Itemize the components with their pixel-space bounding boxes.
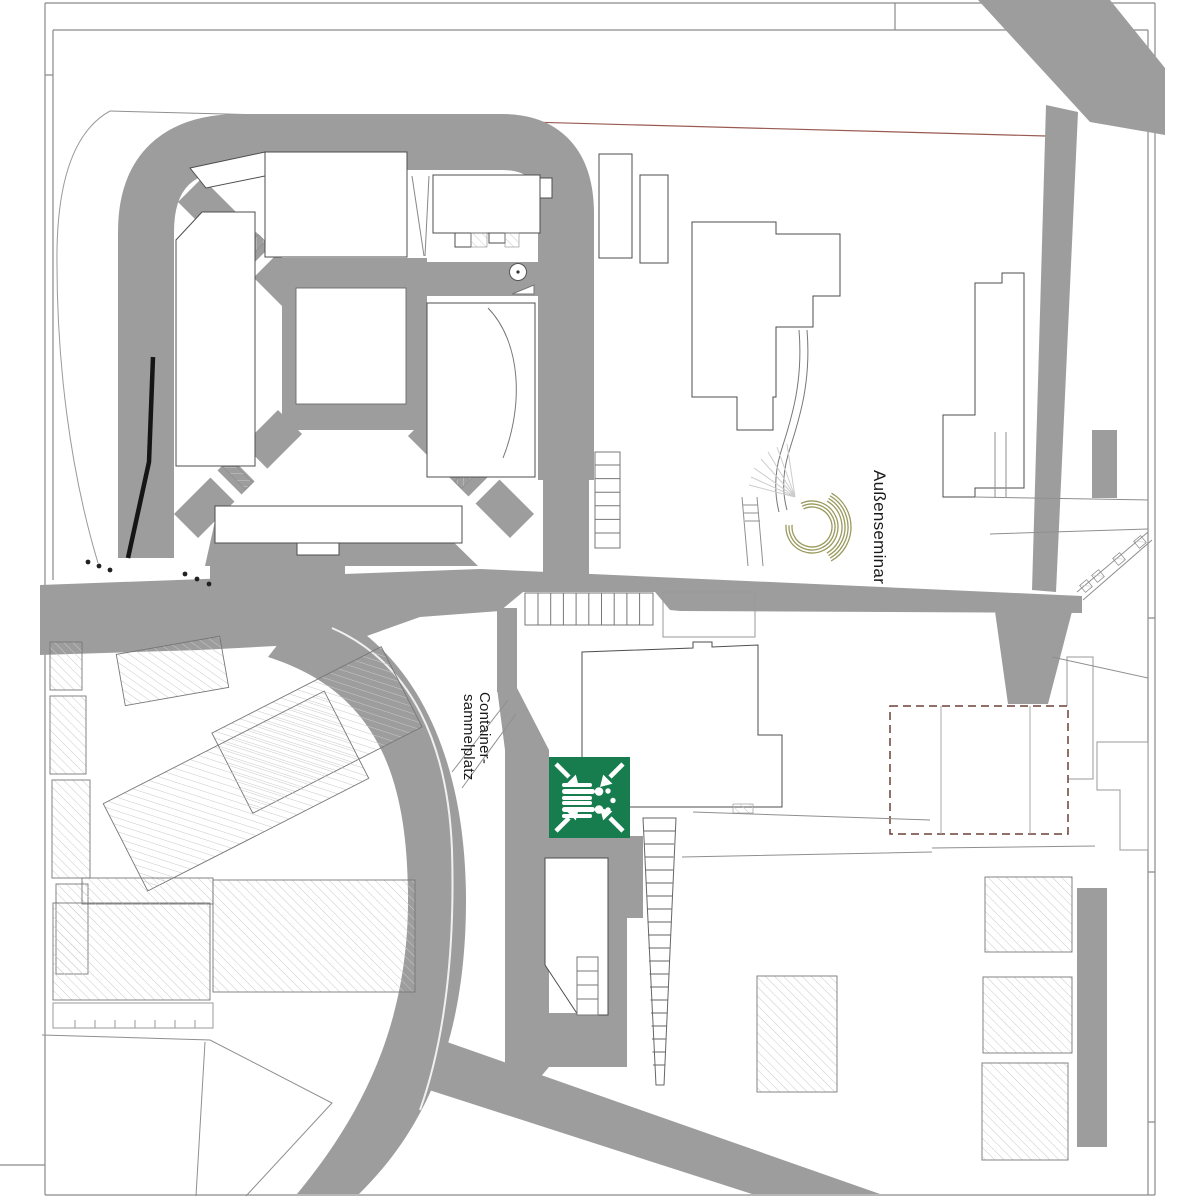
building-narrow-1 [599, 154, 632, 258]
building-e-courtyard [427, 303, 535, 477]
building-w-tall [176, 212, 255, 466]
right-vertical-road [1077, 888, 1107, 1147]
site-plan: Außenseminar Container- sammelplatz [0, 0, 1200, 1200]
site-plan-svg: Außenseminar Container- sammelplatz [0, 0, 1200, 1200]
assembly-point-sign [549, 757, 630, 838]
building-n-small [433, 175, 540, 233]
building-narrow-2 [640, 175, 668, 263]
label-aussenseminar: Außenseminar [870, 470, 889, 584]
courtyard [296, 288, 406, 404]
terrace-strip [1067, 657, 1093, 779]
building-s-long [215, 506, 462, 543]
parking-column [595, 452, 620, 548]
label-container-line1: Container- [476, 692, 493, 764]
planned-building-dashed [890, 706, 1068, 834]
building-nw-large [265, 152, 407, 257]
label-container-line2: sammelplatz [460, 694, 477, 780]
